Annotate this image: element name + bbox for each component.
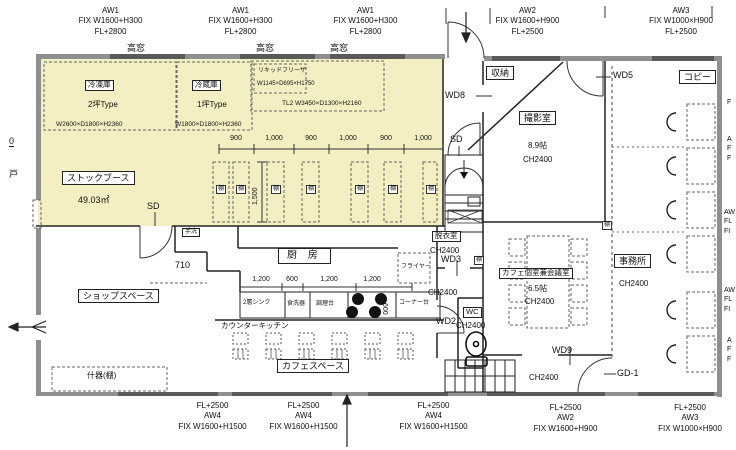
photo-room-ch: CH2400 <box>523 155 552 164</box>
wd8-label: WD8 <box>445 90 465 100</box>
spiral-stair-icon <box>445 155 483 232</box>
cafe-space-label: カフェスペース <box>277 359 349 373</box>
edge-cut-label-5: A F F <box>727 336 732 364</box>
rack-dim-3: 900 <box>297 135 325 143</box>
floor-plan: AW1 FIX W1600+H300 FL+2800 高窓 AW1 FIX W1… <box>0 0 736 450</box>
edge-cut-label-1: F <box>727 98 731 107</box>
rack-dim-5: 900 <box>372 135 400 143</box>
shop-space-label: ショップスペース <box>78 289 159 303</box>
stair-bottom-icon <box>445 360 515 392</box>
wd2-label: WD2 <box>436 316 456 326</box>
toilet-icon <box>466 332 487 366</box>
counter-stool-hatch <box>238 349 408 359</box>
sd-label-2: SD <box>450 134 463 144</box>
window-label-aw3-bottom: FL+2500 AW3 FIX W1000×H900 <box>635 403 736 434</box>
shelf-tag: 棚 <box>355 185 365 194</box>
rack-vdim: 1,500 <box>252 187 260 205</box>
fridge-type: 1坪Type <box>197 100 227 109</box>
dressing-room-label: 脱衣室 <box>432 231 461 242</box>
window-label-aw2-top: AW2 FIX W1600+H900 FL+2500 <box>475 6 580 37</box>
fridge-size: W1800×D1800×H2360 <box>175 121 242 128</box>
shelf-tag: 棚 <box>236 185 246 194</box>
shelf-tag: 棚 <box>216 185 226 194</box>
rack-dim-6: 1,000 <box>409 135 437 143</box>
window-label-aw4-3: FL+2500 AW4 FIX W1600+H1500 <box>376 401 491 432</box>
counter-kitchen-label: カウンターキッチン <box>221 322 289 331</box>
dishwasher-label: 食洗器 <box>287 301 305 308</box>
meeting-table <box>527 236 569 328</box>
wd5-label: WD5 <box>613 70 633 80</box>
window-label-aw2-bottom: FL+2500 AW2 FIX W1600+H900 <box>508 403 623 434</box>
fridge-label: 冷蔵庫 <box>192 80 221 91</box>
highwindow-tag-2: 高窓 <box>256 43 274 53</box>
prep-table-label: 調理台 <box>316 301 334 308</box>
office-ch: CH2400 <box>619 279 648 288</box>
rack-dim-2: 1,000 <box>260 135 288 143</box>
liquid-freezer-size: W1145×D695×H1750 <box>257 81 315 88</box>
kitchen-dim-2: 600 <box>281 276 303 284</box>
shelf-tag: 棚 <box>306 185 316 194</box>
highwindow-tag-3: 高窓 <box>330 43 348 53</box>
wd5-door <box>567 61 603 96</box>
dressing-ch: CH2400 <box>430 246 459 255</box>
kitchen-dim-1: 1,200 <box>244 276 278 284</box>
window-label-aw1-3: AW1 FIX W1600+H300 FL+2800 <box>303 6 428 37</box>
arrow-down-icon <box>462 33 470 42</box>
arrow-left-icon <box>9 323 18 331</box>
window-label-aw1-2: AW1 FIX W1600+H300 FL+2800 <box>178 6 303 37</box>
photo-room-label: 撮影室 <box>519 111 556 125</box>
stock-booth-label: ストックブース <box>62 171 135 185</box>
cafe-private-room-ch: CH2400 <box>525 297 554 306</box>
shelf-tag: 棚 <box>474 256 484 265</box>
edge-cut-label-2: A F F <box>727 135 732 163</box>
rack-dim-4: 1,000 <box>334 135 362 143</box>
gd1-door <box>578 358 612 392</box>
kitchen-vdim: 600 <box>380 303 388 315</box>
kitchen-dim-4: 1,200 <box>355 276 389 284</box>
edge-cut-label-3: AW FL FI <box>724 208 735 236</box>
kitchen-dim-3: 1,200 <box>312 276 346 284</box>
corridor-dim: 710 <box>175 260 190 270</box>
corner-table-label: コーナー台 <box>399 300 429 307</box>
cafe-private-room-size: 6.5帖 <box>528 284 547 293</box>
window-label-aw1-1: AW1 FIX W1600+H300 FL+2800 <box>48 6 173 37</box>
hall-ch: CH2400 <box>529 373 558 382</box>
office-chairs-icon <box>667 113 676 363</box>
stock-booth-area: 49.03㎡ <box>78 195 110 205</box>
office-label: 事務所 <box>614 254 651 268</box>
floorplan-drawing <box>0 0 736 450</box>
wd3-label: WD3 <box>441 254 461 264</box>
fryer-label: フライヤー <box>401 264 431 271</box>
wc-ch: CH2400 <box>456 321 485 330</box>
corridor-ch: CH2400 <box>428 288 457 297</box>
gd1-label: GD-1 <box>617 368 639 378</box>
freezer-size: W2600×D1800×H2360 <box>56 121 123 128</box>
wc-label: WC <box>463 307 482 318</box>
shelf-tag: 棚 <box>388 185 398 194</box>
freezer-type: 2坪Type <box>88 100 118 109</box>
highwindow-tag-1: 高窓 <box>127 43 145 53</box>
cafe-private-room-label: カフェ個室兼会議室 <box>499 268 573 279</box>
shelf-tag: 棚 <box>426 185 436 194</box>
sd-door-stock <box>140 226 172 258</box>
rack-dim-1: 900 <box>222 135 250 143</box>
sd-label-1: SD <box>147 201 160 211</box>
window-label-aw3-top: AW3 FIX W1000×H900 FL+2500 <box>625 6 736 37</box>
left-door-label: 戸 <box>9 169 18 179</box>
storage-label: 収納 <box>486 66 514 80</box>
liquid-freezer-label: リキッドフリーザ <box>258 68 306 75</box>
kitchen-label: 厨 房 <box>278 248 331 264</box>
tl2-label: TL2 W3450×D1300×H2160 <box>282 100 362 107</box>
shelf-cross-icon <box>448 210 482 223</box>
edge-cut-label-4: AW FL FI <box>724 286 735 314</box>
handwash-label: 手洗 <box>182 228 200 237</box>
sink-label: 2層シンク <box>243 300 270 307</box>
shelf-tag: 棚 <box>271 185 281 194</box>
window-label-aw4-2: FL+2500 AW4 FIX W1600+H1500 <box>246 401 361 432</box>
edge-number: 0 <box>9 136 14 147</box>
wd9-label: WD9 <box>552 345 572 355</box>
fixture-shelf-label: 什器(棚) <box>87 371 116 380</box>
freezer-label: 冷凍庫 <box>85 80 114 91</box>
counter-seats <box>233 333 413 359</box>
shelf-tag: 棚 <box>602 221 612 230</box>
photo-room-size: 8.9帖 <box>528 141 547 150</box>
copy-label: コピー <box>679 70 716 84</box>
